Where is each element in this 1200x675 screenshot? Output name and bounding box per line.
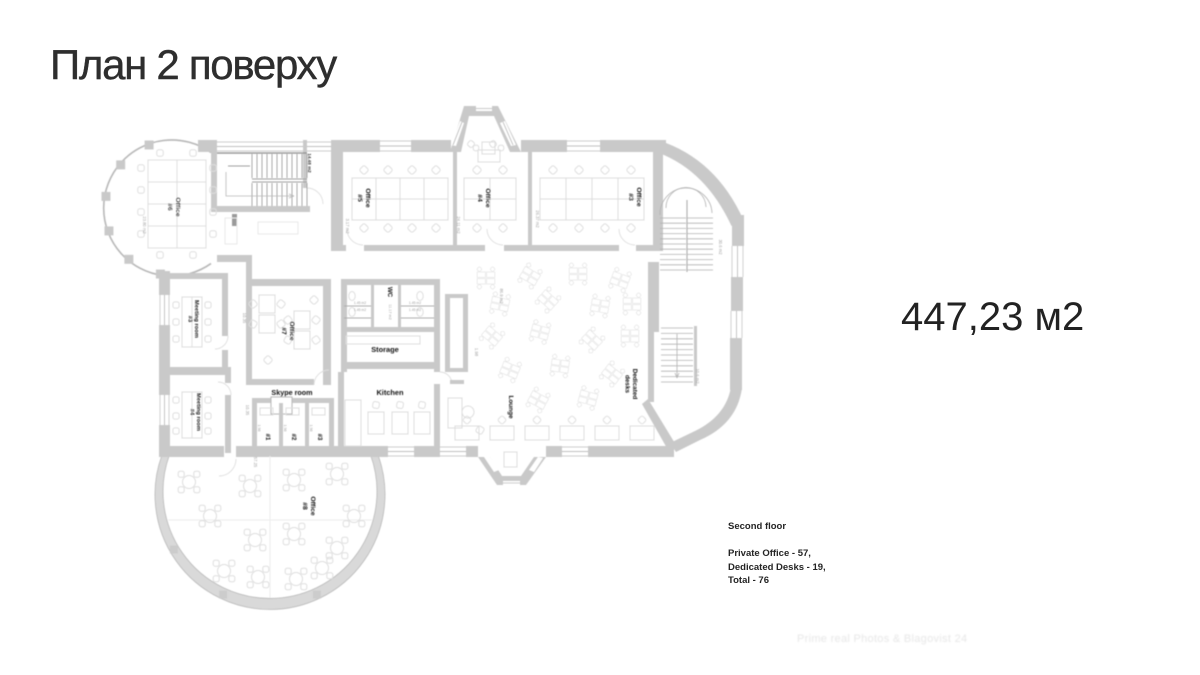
svg-text:Lounge: Lounge bbox=[507, 395, 514, 419]
svg-text:1.98: 1.98 bbox=[309, 425, 313, 432]
svg-text:1.98: 1.98 bbox=[257, 425, 261, 432]
svg-text:10.6 m2: 10.6 m2 bbox=[695, 368, 700, 384]
svg-text:Dedicateddesks: Dedicateddesks bbox=[624, 369, 638, 400]
svg-text:10.35: 10.35 bbox=[242, 313, 247, 324]
svg-text:Meeting room#3: Meeting room#3 bbox=[186, 300, 199, 338]
svg-text:Meeting room#4: Meeting room#4 bbox=[188, 393, 201, 431]
svg-text:WC: WC bbox=[386, 287, 393, 298]
svg-text:1.45 m2: 1.45 m2 bbox=[409, 308, 421, 312]
svg-text:1.98: 1.98 bbox=[283, 425, 287, 432]
svg-text:1.45 m2: 1.45 m2 bbox=[354, 308, 366, 312]
svg-text:Storage: Storage bbox=[371, 345, 399, 354]
svg-text:3.17 m2: 3.17 m2 bbox=[345, 218, 350, 234]
svg-text:Office#8: Office#8 bbox=[301, 496, 316, 515]
svg-text:86.9 m2: 86.9 m2 bbox=[499, 288, 504, 304]
svg-text:23.80 m2: 23.80 m2 bbox=[142, 216, 147, 234]
svg-text:24.11 m2: 24.11 m2 bbox=[456, 216, 461, 234]
svg-text:30.6 m2: 30.6 m2 bbox=[718, 239, 723, 255]
svg-text:57.25: 57.25 bbox=[253, 457, 258, 468]
svg-text:14.48 m2: 14.48 m2 bbox=[307, 153, 312, 173]
svg-text:#3: #3 bbox=[316, 434, 322, 441]
svg-text:1.45 m2: 1.45 m2 bbox=[409, 301, 421, 305]
svg-text:Office#4: Office#4 bbox=[476, 188, 491, 207]
svg-text:11.17 m2: 11.17 m2 bbox=[388, 304, 392, 320]
svg-text:10.35: 10.35 bbox=[245, 405, 250, 416]
svg-text:1.98: 1.98 bbox=[474, 348, 479, 357]
svg-text:26.37 m2: 26.37 m2 bbox=[535, 210, 540, 228]
svg-text:Kitchen: Kitchen bbox=[376, 388, 404, 397]
svg-text:Office#3: Office#3 bbox=[627, 187, 642, 206]
svg-text:#1: #1 bbox=[264, 434, 270, 441]
svg-text:1.45 m2: 1.45 m2 bbox=[354, 301, 366, 305]
svg-text:#2: #2 bbox=[290, 434, 296, 441]
svg-text:Skype room: Skype room bbox=[271, 388, 312, 397]
svg-text:Office#5: Office#5 bbox=[356, 188, 371, 207]
